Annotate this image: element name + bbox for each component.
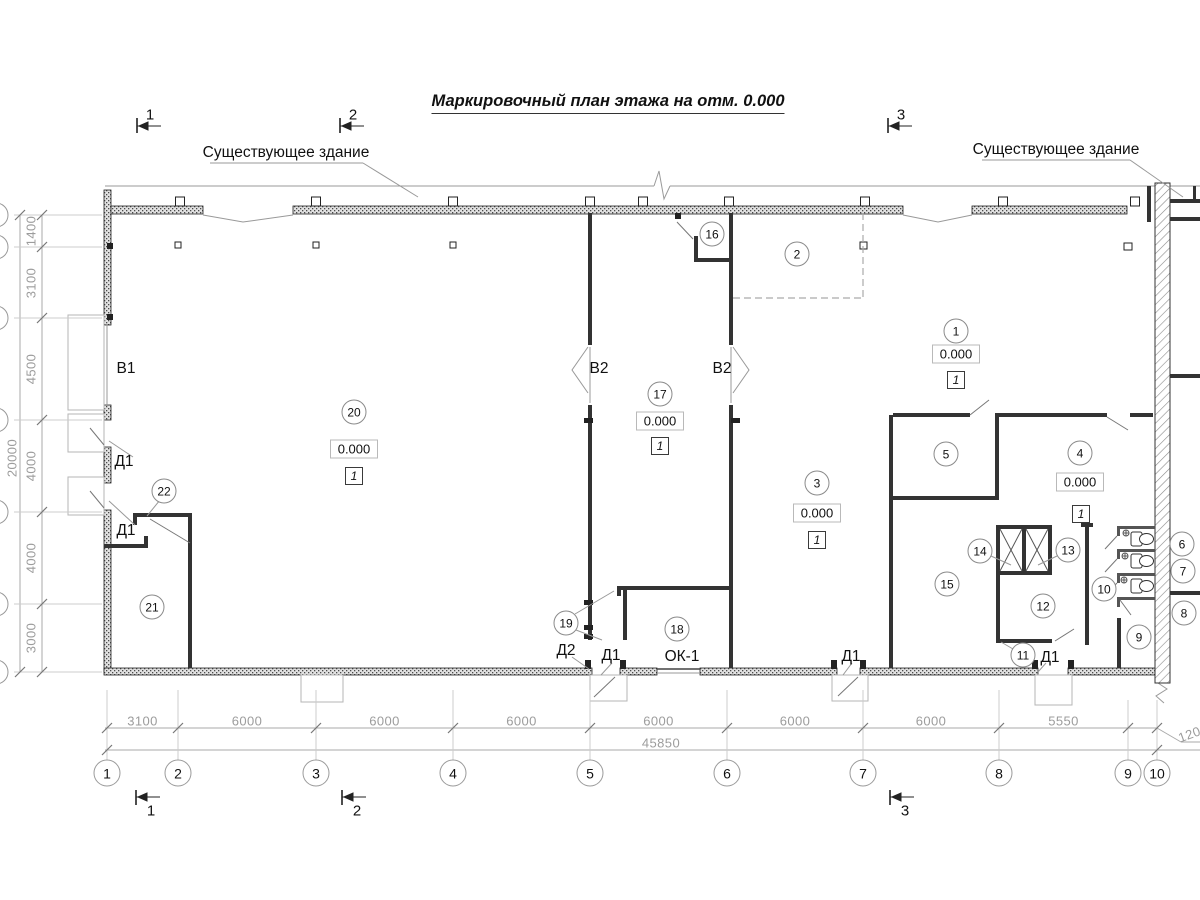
room-circle-15: 15 <box>935 572 960 597</box>
room-circle-5: 5 <box>934 442 959 467</box>
room-circle-7: 7 <box>1171 559 1196 584</box>
dim-bottom-total: 45850 <box>642 736 680 751</box>
section-mark-bottom-2: 2 <box>353 803 361 820</box>
door-swings <box>90 222 1131 697</box>
room-circle-18: 18 <box>665 617 690 642</box>
room-circle-9: 9 <box>1127 625 1152 650</box>
gate-label-b2-left: В2 <box>590 360 609 378</box>
dim-bottom-segment-1: 3100 <box>127 714 158 729</box>
dim-left-segment-5: 4000 <box>24 543 39 574</box>
section-mark-bottom-1: 1 <box>147 803 155 820</box>
dim-left-segment-6: 3000 <box>24 623 39 654</box>
axis-bubble-8: 8 <box>986 760 1013 787</box>
elevation-mark-room-20: 0.000 <box>330 440 378 459</box>
dim-bottom-segment-5: 6000 <box>643 714 674 729</box>
room-circle-10: 10 <box>1092 577 1117 602</box>
elevation-mark-room-1: 0.000 <box>932 345 980 364</box>
room-circle-2: 2 <box>785 242 810 267</box>
room-circle-11: 11 <box>1011 643 1036 668</box>
room-circle-21: 21 <box>140 595 165 620</box>
dim-bottom-segment-4: 6000 <box>506 714 537 729</box>
room-circle-20: 20 <box>342 400 367 425</box>
door-label-d1-bottom-axis5: Д1 <box>601 647 620 665</box>
room-circle-16: 16 <box>700 222 725 247</box>
door-label-d1-left-lower: Д1 <box>116 522 135 540</box>
window-ok1 <box>657 669 700 673</box>
axis-bubble-4: 4 <box>440 760 467 787</box>
window-ok1-label: ОК-1 <box>665 648 700 666</box>
wall-openings <box>107 215 972 405</box>
elevation-mark-room-4: 0.000 <box>1056 473 1104 492</box>
dim-bottom-segment-2: 6000 <box>232 714 263 729</box>
floor-type-mark-room-17: 1 <box>651 437 669 455</box>
room-circle-19: 19 <box>554 611 579 636</box>
dim-bottom-segment-8: 5550 <box>1048 714 1079 729</box>
floor-type-mark-room-3: 1 <box>808 531 826 549</box>
dim-left-segment-2: 3100 <box>24 267 39 298</box>
floor-type-mark-room-4: 1 <box>1072 505 1090 523</box>
axis-bubble-9: 9 <box>1115 760 1142 787</box>
room-circle-6: 6 <box>1170 532 1195 557</box>
axis-bubble-6: 6 <box>714 760 741 787</box>
existing-building-label-right: Существующее здание <box>973 141 1140 159</box>
toilet-fixtures <box>1121 530 1154 593</box>
axis-bubble-5: 5 <box>577 760 604 787</box>
room-circle-22: 22 <box>152 479 177 504</box>
elevation-mark-room-3: 0.000 <box>793 504 841 523</box>
dim-bottom-segment-3: 6000 <box>369 714 400 729</box>
dim-left-segment-3: 4500 <box>24 354 39 385</box>
door-label-d1-left-upper: Д1 <box>114 453 133 471</box>
dim-bottom-segment-7: 6000 <box>916 714 947 729</box>
axis-bubble-10: 10 <box>1144 760 1171 787</box>
room-circle-12: 12 <box>1031 594 1056 619</box>
column-marks <box>175 197 1140 250</box>
room-circle-8: 8 <box>1172 601 1197 626</box>
drawing-title: Маркировочный план этажа на отм. 0.000 <box>431 92 784 114</box>
door-label-d1-bottom-axis7: Д1 <box>841 648 860 666</box>
axis-bubble-3: 3 <box>303 760 330 787</box>
section-mark-top-1: 1 <box>146 107 154 124</box>
dim-bottom-segment-6: 6000 <box>780 714 811 729</box>
floor-type-mark-room-1: 1 <box>947 371 965 389</box>
elevation-mark-room-17: 0.000 <box>636 412 684 431</box>
room-circle-17: 17 <box>648 382 673 407</box>
floor-plan-canvas: Маркировочный план этажа на отм. 0.000 С… <box>0 0 1200 900</box>
axis-bubble-2: 2 <box>165 760 192 787</box>
room-circle-4: 4 <box>1068 441 1093 466</box>
room-circle-3: 3 <box>805 471 830 496</box>
room-circle-1: 1 <box>944 319 969 344</box>
dim-left-total: 20000 <box>5 439 20 477</box>
room-circle-14: 14 <box>968 539 993 564</box>
dim-left-segment-1: 1400 <box>24 216 39 247</box>
floor-type-mark-room-20: 1 <box>345 467 363 485</box>
axis-bubble-1: 1 <box>94 760 121 787</box>
existing-building-label-left: Существующее здание <box>203 144 370 162</box>
existing-building-wall <box>1155 183 1170 683</box>
gate-label-b2-right: В2 <box>713 360 732 378</box>
room-circle-13: 13 <box>1056 538 1081 563</box>
gate-label-b1: В1 <box>117 360 136 378</box>
section-mark-top-2: 2 <box>349 107 357 124</box>
door-label-d1-bottom-axis8: Д1 <box>1040 649 1059 667</box>
section-mark-top-3: 3 <box>897 107 905 124</box>
door-label-d2-bottom: Д2 <box>556 642 575 660</box>
dim-left-segment-4: 4000 <box>24 451 39 482</box>
axis-bubble-7: 7 <box>850 760 877 787</box>
section-mark-bottom-3: 3 <box>901 803 909 820</box>
